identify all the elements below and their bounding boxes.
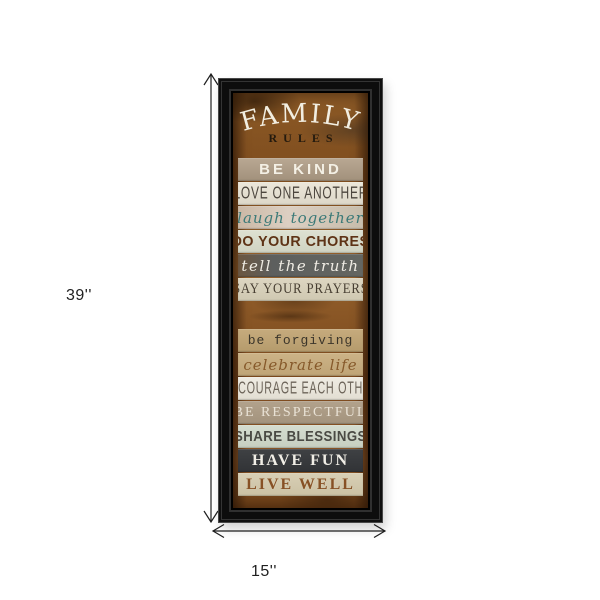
rule-slat-say-your-prayers: SAY YOUR PRAYERS — [238, 278, 363, 301]
rule-slat-love-one-another: LOVE ONE ANOTHER — [238, 182, 363, 205]
family-rules-artwork: FAMILY RULES BE KINDLOVE ONE ANOTHERlaug… — [233, 93, 368, 508]
rule-text: HAVE FUN — [252, 452, 349, 470]
rule-text: DO YOUR CHORES — [238, 233, 363, 250]
rule-slat-be-forgiving: be forgiving — [238, 329, 363, 352]
rule-slat-be-kind: BE KIND — [238, 158, 363, 181]
rule-slat-celebrate-life: celebrate life — [238, 353, 363, 376]
product-image: 39'' 15'' FAMILY RULES BE KINDLOVE ONE A… — [0, 0, 600, 600]
rule-text: celebrate life — [243, 356, 357, 374]
height-dimension-label: 39'' — [66, 287, 92, 305]
rule-text: BE KIND — [259, 161, 342, 178]
rule-text: LOVE ONE ANOTHER — [238, 183, 363, 203]
height-arrow — [204, 74, 218, 522]
picture-frame: FAMILY RULES BE KINDLOVE ONE ANOTHERlaug… — [218, 78, 383, 523]
rule-text: BE RESPECTFUL — [238, 405, 363, 421]
rule-text: ENCOURAGE EACH OTHER — [238, 379, 363, 399]
rule-slat-tell-the-truth: tell the truth — [238, 254, 363, 277]
width-arrow — [213, 525, 385, 538]
artwork-title-block: FAMILY RULES — [233, 97, 368, 155]
rule-slat-live-well: LIVE WELL — [238, 473, 363, 496]
rule-slat-encourage-each-other: ENCOURAGE EACH OTHER — [238, 377, 363, 400]
rule-text: SHARE BLESSINGS — [238, 428, 363, 445]
rule-slat-be-respectful: BE RESPECTFUL — [238, 401, 363, 424]
rule-text: laugh together — [238, 209, 363, 227]
rule-text: LIVE WELL — [246, 476, 355, 494]
rule-slat-do-your-chores: DO YOUR CHORES — [238, 230, 363, 253]
width-dimension-label: 15'' — [251, 563, 277, 581]
rule-slat-have-fun: HAVE FUN — [238, 449, 363, 472]
rule-slat-share-blessings: SHARE BLESSINGS — [238, 425, 363, 448]
rule-text: SAY YOUR PRAYERS — [238, 281, 363, 298]
rule-text: be forgiving — [248, 333, 354, 348]
wood-gap — [238, 302, 363, 328]
rule-text: tell the truth — [241, 257, 359, 275]
rule-slat-laugh-together: laugh together — [238, 206, 363, 229]
rule-slats: BE KINDLOVE ONE ANOTHERlaugh togetherDO … — [238, 158, 363, 496]
